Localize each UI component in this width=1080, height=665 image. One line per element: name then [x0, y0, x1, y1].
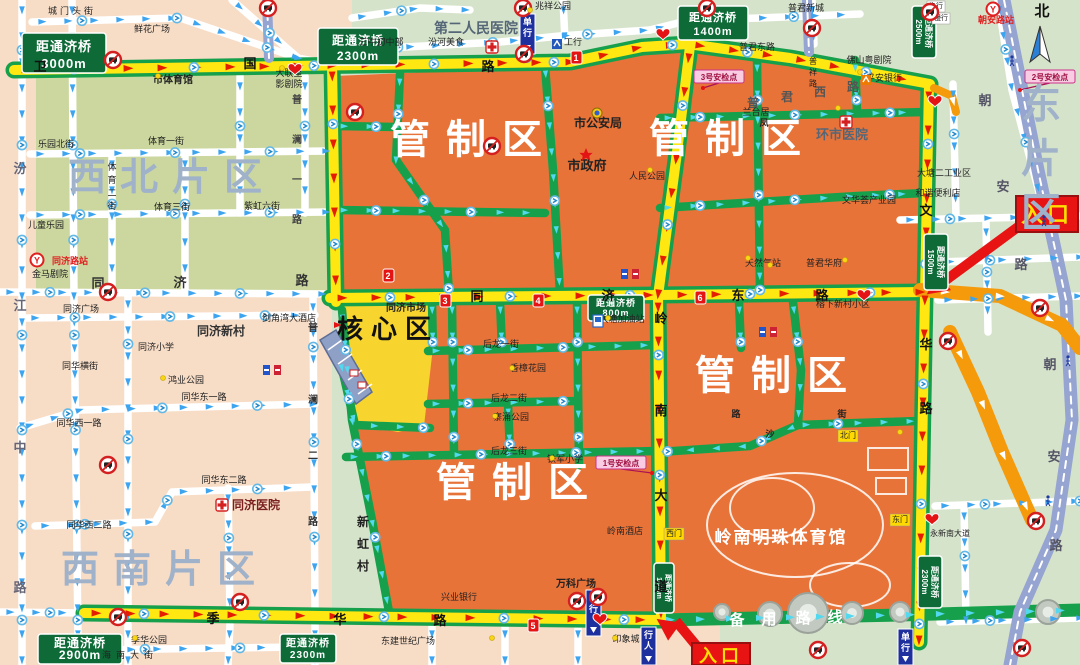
road-name-char: 君 — [780, 90, 793, 104]
distance-sign-text: 2900m — [59, 648, 101, 662]
poi-label: 虹 — [357, 536, 369, 551]
stop-marker-icon — [466, 207, 475, 216]
hospital-cross-icon — [486, 41, 498, 53]
road-name-char: 道 — [654, 579, 667, 594]
no-entry-bus-icon — [110, 609, 126, 625]
stop-marker-icon — [262, 43, 271, 52]
map-canvas: 入口入口距通济桥3000m距通济桥2300m距通济桥1400m距通济桥2500m… — [0, 0, 1080, 665]
road-name-char: 澜 — [308, 393, 318, 406]
poi-label: 金马剧院 — [32, 268, 68, 279]
stop-marker-icon — [235, 289, 244, 298]
stop-marker-icon — [549, 58, 558, 67]
stop-marker-icon — [833, 419, 842, 428]
poi-label: 岭南酒店 — [607, 525, 643, 536]
road-name-char: 路 — [1049, 538, 1063, 553]
gate-number-tag: 5 — [528, 619, 539, 632]
road-name-char: 路 — [13, 580, 27, 595]
stop-marker-icon — [17, 615, 26, 624]
zone-title: 东 — [1021, 83, 1061, 127]
no-entry-bus-icon — [484, 138, 500, 154]
flyover-pillar — [841, 602, 863, 624]
stop-marker-icon — [755, 285, 764, 294]
distance-sign-text: 距通济桥 — [936, 246, 946, 279]
poi-dot-icon — [606, 316, 611, 321]
zone-title: 西南片区 — [61, 549, 269, 591]
poi-dot-icon — [648, 168, 653, 173]
compass-north-label: 北 — [1034, 3, 1049, 20]
stop-marker-icon — [476, 450, 485, 459]
road-name-char: 安 — [996, 179, 1009, 194]
poi-label: 体育一街 — [148, 135, 184, 146]
road-name-char: 朝 — [1043, 357, 1056, 372]
stop-marker-icon — [69, 235, 78, 244]
distance-sign-text: 2300m — [337, 49, 379, 63]
distance-sign: 距通济桥2300m — [280, 634, 336, 663]
poi-label: 同济小学 — [138, 341, 174, 352]
poi-label: 大塘二工业区 — [917, 167, 971, 178]
poi-dot-icon — [746, 256, 751, 261]
poi-label: 和谐便利店 — [915, 187, 960, 198]
poi-label: 榕下新村小区 — [816, 298, 870, 309]
stop-marker-icon — [789, 12, 798, 21]
poi-dot-icon — [613, 636, 618, 641]
poi-label: 环市医院 — [816, 127, 868, 142]
stop-marker-icon — [655, 470, 664, 479]
road-name-char: 普 — [292, 93, 302, 106]
stop-marker-icon — [950, 129, 959, 138]
gas-station-icon — [593, 315, 603, 327]
stop-marker-icon — [678, 101, 687, 110]
checkpoint-flag-label: 1号安检点 — [603, 458, 639, 468]
stop-marker-icon — [397, 6, 406, 15]
stop-marker-icon — [915, 619, 924, 628]
road-name-char: 路 — [731, 408, 741, 419]
stop-marker-icon — [235, 643, 244, 652]
poi-label: 普君新城 — [788, 2, 824, 13]
hospital-cross-icon — [216, 499, 228, 511]
poi-label: 同华东一路 — [181, 391, 226, 402]
stop-marker-icon — [165, 312, 174, 321]
no-entry-bus-icon — [940, 333, 956, 349]
stop-marker-icon — [17, 330, 26, 339]
stop-marker-icon — [17, 235, 26, 244]
poi-label: 育 — [107, 174, 116, 185]
stop-marker-icon — [429, 59, 438, 68]
road-name-char: 路 — [433, 613, 447, 628]
poi-label: 街 — [107, 200, 116, 211]
poi-label: 普 — [809, 56, 817, 66]
road-name-char: 路 — [308, 515, 319, 528]
oneway-sign: 行人 — [641, 627, 656, 665]
road-name-char: 沙 — [765, 429, 774, 439]
stop-marker-icon — [341, 345, 350, 354]
stop-marker-icon — [668, 40, 677, 49]
no-entry-bus-icon — [516, 46, 532, 62]
poi-label: 兴业银行 — [441, 591, 477, 602]
oneway-sign-text: 单 — [901, 631, 910, 642]
no-entry-bus-icon — [232, 594, 248, 610]
no-entry-bus-icon — [1014, 640, 1030, 656]
checkpoint-flag-label: 3号安检点 — [701, 72, 737, 82]
entrance-sign-label: 入口 — [699, 646, 743, 665]
checkpoint-flag-label: 2号安检点 — [1032, 72, 1068, 82]
road-name-char: 路 — [295, 273, 309, 288]
poi-label: 同济广场 — [63, 303, 99, 314]
bank-icon — [552, 39, 562, 49]
hospital-cross-icon — [840, 116, 852, 128]
metro-logo-glyph: Y — [34, 256, 40, 266]
stop-marker-icon — [463, 399, 472, 408]
stop-marker-icon — [852, 95, 861, 104]
zone-title: 管制区 — [436, 461, 604, 505]
stop-marker-icon — [371, 206, 380, 215]
stop-marker-icon — [172, 13, 181, 22]
road-name-char: 同 — [470, 289, 483, 304]
no-entry-bus-icon — [105, 52, 121, 68]
poi-label: 香樟花园 — [510, 362, 546, 373]
road-name-char: 华 — [333, 612, 346, 627]
road-name-char: 岭 — [654, 311, 667, 326]
oneway-sign: 单行 — [898, 629, 913, 665]
poi-label: 路 — [809, 78, 817, 88]
poi-label: 兰台居 — [742, 106, 769, 117]
poi-dot-icon — [843, 258, 848, 263]
no-entry-bus-icon — [260, 0, 276, 16]
stop-marker-icon — [265, 147, 274, 156]
poi-label: 鲜花广场 — [134, 23, 170, 34]
stop-marker-icon — [663, 220, 672, 229]
stop-marker-icon — [309, 342, 318, 351]
stop-marker-icon — [917, 499, 926, 508]
stop-marker-icon — [793, 337, 802, 346]
poi-label: 城门头街 — [48, 5, 96, 16]
poi-label: 汾河美食 — [428, 36, 464, 47]
stop-marker-icon — [17, 520, 26, 529]
road-name-char: 路 — [795, 609, 811, 627]
stop-marker-icon — [543, 101, 552, 110]
poi-label: 第二人民医院 — [434, 20, 518, 36]
road-controlled-street — [452, 302, 454, 452]
stop-marker-icon — [330, 239, 339, 248]
stop-marker-icon — [982, 267, 991, 276]
road-name-char: 文 — [919, 203, 933, 218]
stop-marker-icon — [960, 551, 969, 560]
road-name-char: 二 — [308, 450, 318, 462]
stop-marker-icon — [170, 148, 179, 157]
zone-title: 管制区 — [390, 118, 558, 162]
oneway-sign-text: 单 — [523, 16, 532, 27]
oneway-sign-text: 行 — [900, 642, 910, 653]
stop-marker-icon — [463, 345, 472, 354]
distance-sign-text: 距通济桥 — [930, 566, 940, 599]
stop-marker-icon — [419, 195, 428, 204]
poi-label: 紫虹六街 — [244, 200, 280, 211]
road-name-char: 一 — [292, 175, 302, 186]
poi-label: 祥 — [809, 67, 817, 77]
road-name-char: 线 — [827, 608, 842, 626]
stop-marker-icon — [300, 121, 309, 130]
stop-marker-icon — [619, 615, 628, 624]
stop-marker-icon — [558, 343, 567, 352]
stop-marker-icon — [654, 350, 663, 359]
metro-logo-glyph: Y — [990, 5, 996, 15]
poi-label: 后龙三街 — [491, 445, 527, 456]
poi-label: 体育三街 — [154, 201, 190, 212]
no-entry-bus-icon — [699, 0, 715, 16]
poi-dot-icon — [528, 8, 533, 13]
poi-label: 文华荟产业园 — [842, 194, 896, 205]
no-entry-bus-icon — [804, 20, 820, 36]
no-entry-bus-icon — [922, 4, 938, 20]
stop-marker-icon — [352, 439, 361, 448]
poi-label: 乐园北街 — [38, 138, 74, 149]
poi-label: 佛山粤剧院 — [846, 54, 891, 65]
poi-label: 鸿业公园 — [168, 374, 204, 385]
bank-icon — [861, 75, 871, 85]
road-name-char: 备 — [728, 611, 745, 629]
gate-number: 5 — [530, 621, 535, 631]
stop-marker-icon — [45, 608, 54, 617]
stop-marker-icon — [558, 397, 567, 406]
poi-label: 寨涌公园 — [493, 411, 529, 422]
road-name-char: 街 — [836, 408, 846, 419]
metro-station-name: 朝安路站 — [978, 14, 1014, 25]
stop-marker-icon — [663, 447, 672, 456]
stop-marker-icon — [1075, 496, 1080, 505]
road-name-char: 安 — [1047, 449, 1060, 464]
poi-label: 体 — [107, 161, 116, 172]
stop-marker-icon — [573, 337, 582, 346]
gate-number-tag: 6 — [695, 291, 706, 304]
stop-marker-icon — [309, 61, 318, 70]
gate-number: 3 — [442, 296, 447, 306]
poi-label: 海南大街 — [102, 649, 158, 660]
zone-title: 管制区 — [649, 117, 817, 161]
stop-marker-icon — [70, 313, 79, 322]
gate-number-tag: 4 — [533, 294, 544, 307]
poi-label: 西门 — [666, 528, 682, 538]
poi-label: 后龙一街 — [483, 338, 519, 349]
poi-label: 人民公园 — [629, 171, 665, 181]
stop-marker-icon — [253, 484, 262, 493]
gate-number-tag: 3 — [440, 294, 451, 307]
metro-station: Y同济路站 — [31, 254, 89, 267]
road-name-char: 路 — [481, 59, 495, 74]
stop-marker-icon — [1001, 45, 1010, 54]
road-minor-street — [964, 506, 966, 620]
stop-marker-icon — [695, 201, 704, 210]
road-name-char: 大 — [654, 488, 667, 503]
stop-marker-icon — [123, 339, 132, 348]
poi-dot-icon — [161, 376, 166, 381]
stop-marker-icon — [574, 432, 583, 441]
gate-number-tag: 2 — [383, 269, 394, 282]
poi-dot-icon — [156, 74, 161, 79]
poi-label: 永新南大道 — [930, 528, 970, 538]
poi-dot-icon — [550, 456, 555, 461]
road-name-char: 凤 — [759, 118, 768, 128]
stop-marker-icon — [985, 616, 994, 625]
stop-marker-icon — [371, 533, 380, 542]
road-name-char: 季 — [205, 611, 219, 626]
zone-title: 区 — [1021, 191, 1061, 235]
distance-sign: 距通济桥1500m — [924, 234, 948, 290]
stop-marker-icon — [75, 210, 84, 219]
poi-label: 同济新村 — [197, 323, 245, 338]
distance-sign: 距通济桥2300m — [918, 556, 942, 608]
distance-sign-text: 2500m — [914, 20, 923, 45]
road-name-char: 路 — [1014, 257, 1028, 272]
no-entry-bus-icon — [1032, 300, 1048, 316]
stop-marker-icon — [583, 30, 592, 39]
poi-dot-icon — [898, 430, 903, 435]
road-name-char: 江 — [13, 298, 26, 313]
road-name-char: 卫 — [33, 59, 46, 74]
poi-label: 市政府 — [567, 158, 606, 173]
poi-label: 万科广场 — [555, 577, 596, 590]
road-name-char: 路 — [292, 213, 303, 226]
stop-marker-icon — [385, 293, 394, 302]
stop-marker-icon — [980, 500, 989, 509]
stop-marker-icon — [45, 288, 54, 297]
no-entry-bus-icon — [1028, 513, 1044, 529]
distance-sign-text: 1400m — [693, 26, 732, 38]
road-name-char: 路 — [847, 79, 860, 94]
stop-marker-icon — [736, 337, 745, 346]
poi-dot-icon — [836, 106, 841, 111]
gate-number: 4 — [535, 296, 540, 306]
poi-label: 普君华府 — [806, 257, 842, 268]
poi-label: 同华西一路 — [56, 417, 101, 428]
gate-number: 2 — [385, 271, 390, 281]
oneway-sign-text: 行 — [522, 27, 532, 38]
no-entry-bus-icon — [100, 284, 116, 300]
poi-label: 村 — [357, 558, 369, 573]
distance-sign-text: 3000m — [41, 56, 86, 71]
stop-marker-icon — [448, 337, 457, 346]
stop-marker-icon — [140, 288, 149, 297]
stop-marker-icon — [745, 289, 754, 298]
zone-title: 管制区 — [695, 354, 863, 398]
stop-marker-icon — [73, 615, 82, 624]
stop-marker-icon — [63, 409, 72, 418]
gate-number-tag: 1 — [571, 51, 582, 64]
poi-label: 东建世纪广场 — [381, 635, 435, 646]
flyover-pillar — [890, 602, 910, 622]
road-name-char: 用 — [761, 611, 776, 628]
stop-marker-icon — [265, 28, 274, 37]
stop-marker-icon — [444, 284, 453, 293]
stop-marker-icon — [123, 529, 132, 538]
no-entry-bus-icon — [590, 589, 606, 605]
poi-label: 新 — [357, 514, 369, 529]
stop-marker-icon — [790, 195, 799, 204]
zone-title: 岭南明珠体育馆 — [715, 527, 848, 547]
poi-label: 后龙二街 — [491, 392, 527, 403]
road-name-char: 澜 — [292, 133, 302, 146]
stop-marker-icon — [945, 214, 954, 223]
stop-marker-icon — [123, 434, 132, 443]
road-name-char: 中 — [13, 440, 26, 455]
gate-number: 1 — [573, 53, 578, 63]
traffic-control-map: 入口入口距通济桥3000m距通济桥2300m距通济桥1400m距通济桥2500m… — [0, 0, 1080, 665]
stop-marker-icon — [371, 122, 380, 131]
poi-dot-icon — [768, 263, 773, 268]
stop-marker-icon — [70, 330, 79, 339]
road-name-char: 东 — [731, 288, 744, 303]
stop-marker-icon — [983, 294, 992, 303]
stop-marker-icon — [17, 140, 26, 149]
stop-marker-icon — [919, 379, 928, 388]
distance-sign-text: 2300m — [290, 650, 326, 661]
poi-dot-icon — [493, 414, 498, 419]
poi-label: 普君东路 — [739, 41, 775, 52]
poi-dot-icon — [510, 366, 515, 371]
oneway-sign-text: 人 — [643, 640, 654, 651]
poi-label: 影剧院 — [275, 78, 302, 89]
poi-label: 平安银行 — [866, 72, 902, 83]
no-entry-bus-icon — [810, 642, 826, 658]
stop-marker-icon — [379, 612, 388, 621]
poi-dot-icon — [490, 636, 495, 641]
stop-marker-icon — [259, 611, 268, 620]
stop-marker-icon — [505, 292, 514, 301]
stop-marker-icon — [235, 121, 244, 130]
no-entry-bus-icon — [100, 457, 116, 473]
road-name-char: 汾 — [13, 161, 26, 176]
stop-marker-icon — [224, 533, 233, 542]
stop-marker-icon — [344, 394, 353, 403]
stop-marker-icon — [139, 609, 148, 618]
stop-marker-icon — [328, 119, 337, 128]
road-name-char: 路 — [919, 401, 933, 416]
zone-title: 片 — [1021, 137, 1061, 181]
no-entry-bus-icon — [569, 593, 585, 609]
zone-title: 核心区 — [337, 314, 439, 344]
poi-label: 同华东二路 — [201, 474, 246, 485]
poi-label: 同华横街 — [62, 360, 98, 371]
poi-label: 同济医院 — [232, 497, 280, 512]
road-name-char: 济 — [601, 288, 615, 303]
metro-station-name: 同济路站 — [52, 255, 88, 266]
road-name-char: 朝 — [978, 93, 991, 108]
stop-marker-icon — [550, 196, 559, 205]
stop-marker-icon — [885, 108, 894, 117]
stop-marker-icon — [381, 452, 390, 461]
stop-marker-icon — [754, 190, 763, 199]
poi-label: 兆祥公园 — [535, 0, 571, 11]
stop-marker-icon — [449, 432, 458, 441]
road-name-char: 国 — [243, 56, 256, 71]
stop-marker-icon — [419, 423, 428, 432]
poi-label: 三中初中部 — [358, 36, 403, 47]
stop-marker-icon — [17, 425, 26, 434]
distance-sign-text: 距通济桥 — [286, 637, 330, 650]
zone-title: 西北片区 — [68, 157, 276, 199]
stop-marker-icon — [310, 532, 319, 541]
police-badge-icon — [592, 108, 602, 118]
poi-label: 工行 — [564, 36, 582, 47]
poi-label: 同华西二路 — [66, 519, 111, 530]
no-entry-bus-icon — [347, 104, 363, 120]
poi-label: 北门 — [840, 430, 856, 440]
stop-marker-icon — [77, 16, 86, 25]
poi-label: 同济市场 — [386, 301, 426, 314]
poi-label: 剑角湾大酒店 — [262, 312, 316, 323]
stop-marker-icon — [163, 496, 172, 505]
poi-dot-icon — [858, 70, 863, 75]
oneway-sign-text: 行 — [643, 629, 653, 640]
